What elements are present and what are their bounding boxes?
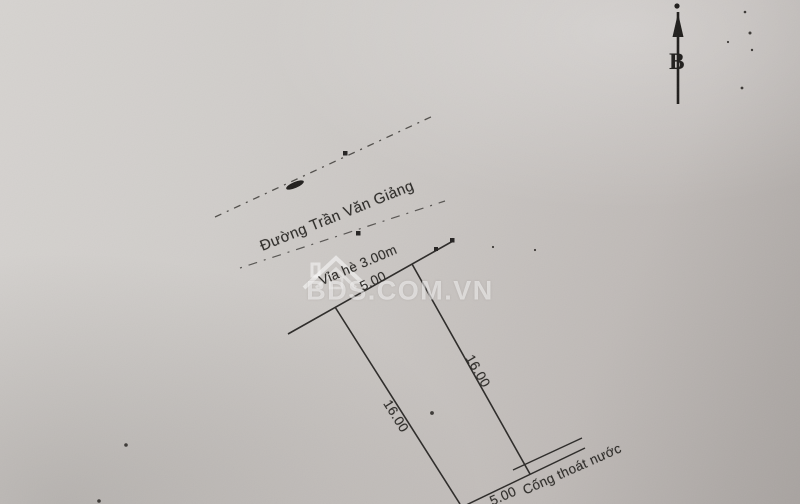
centerline-point-marker [343, 151, 348, 156]
road-edge-point-marker [356, 231, 361, 236]
road-centerline-dashed [215, 116, 433, 217]
photographed-survey-sketch: BDS.COM.VN Đường Trần Văn Giảng Vỉa hè 3… [0, 0, 800, 504]
front-end-point [450, 238, 455, 243]
north-label: B [669, 49, 685, 75]
front-corner-point [434, 247, 438, 251]
